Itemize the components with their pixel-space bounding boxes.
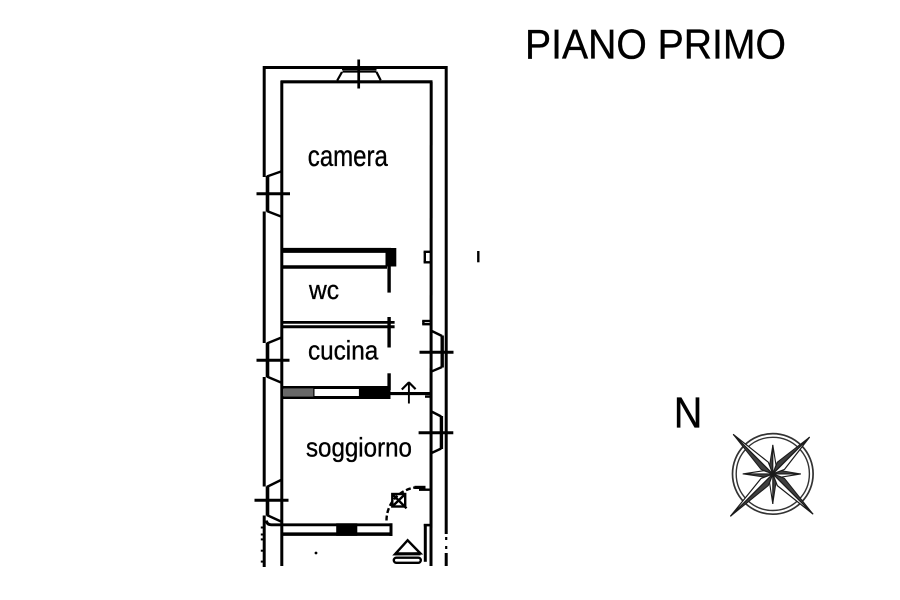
svg-text:wc: wc <box>308 276 339 305</box>
svg-text:soggiorno: soggiorno <box>306 434 412 464</box>
svg-text:camera: camera <box>308 140 388 173</box>
svg-text:N: N <box>674 388 703 437</box>
svg-text:cucina: cucina <box>308 336 379 365</box>
svg-text:PIANO PRIMO: PIANO PRIMO <box>525 20 786 68</box>
